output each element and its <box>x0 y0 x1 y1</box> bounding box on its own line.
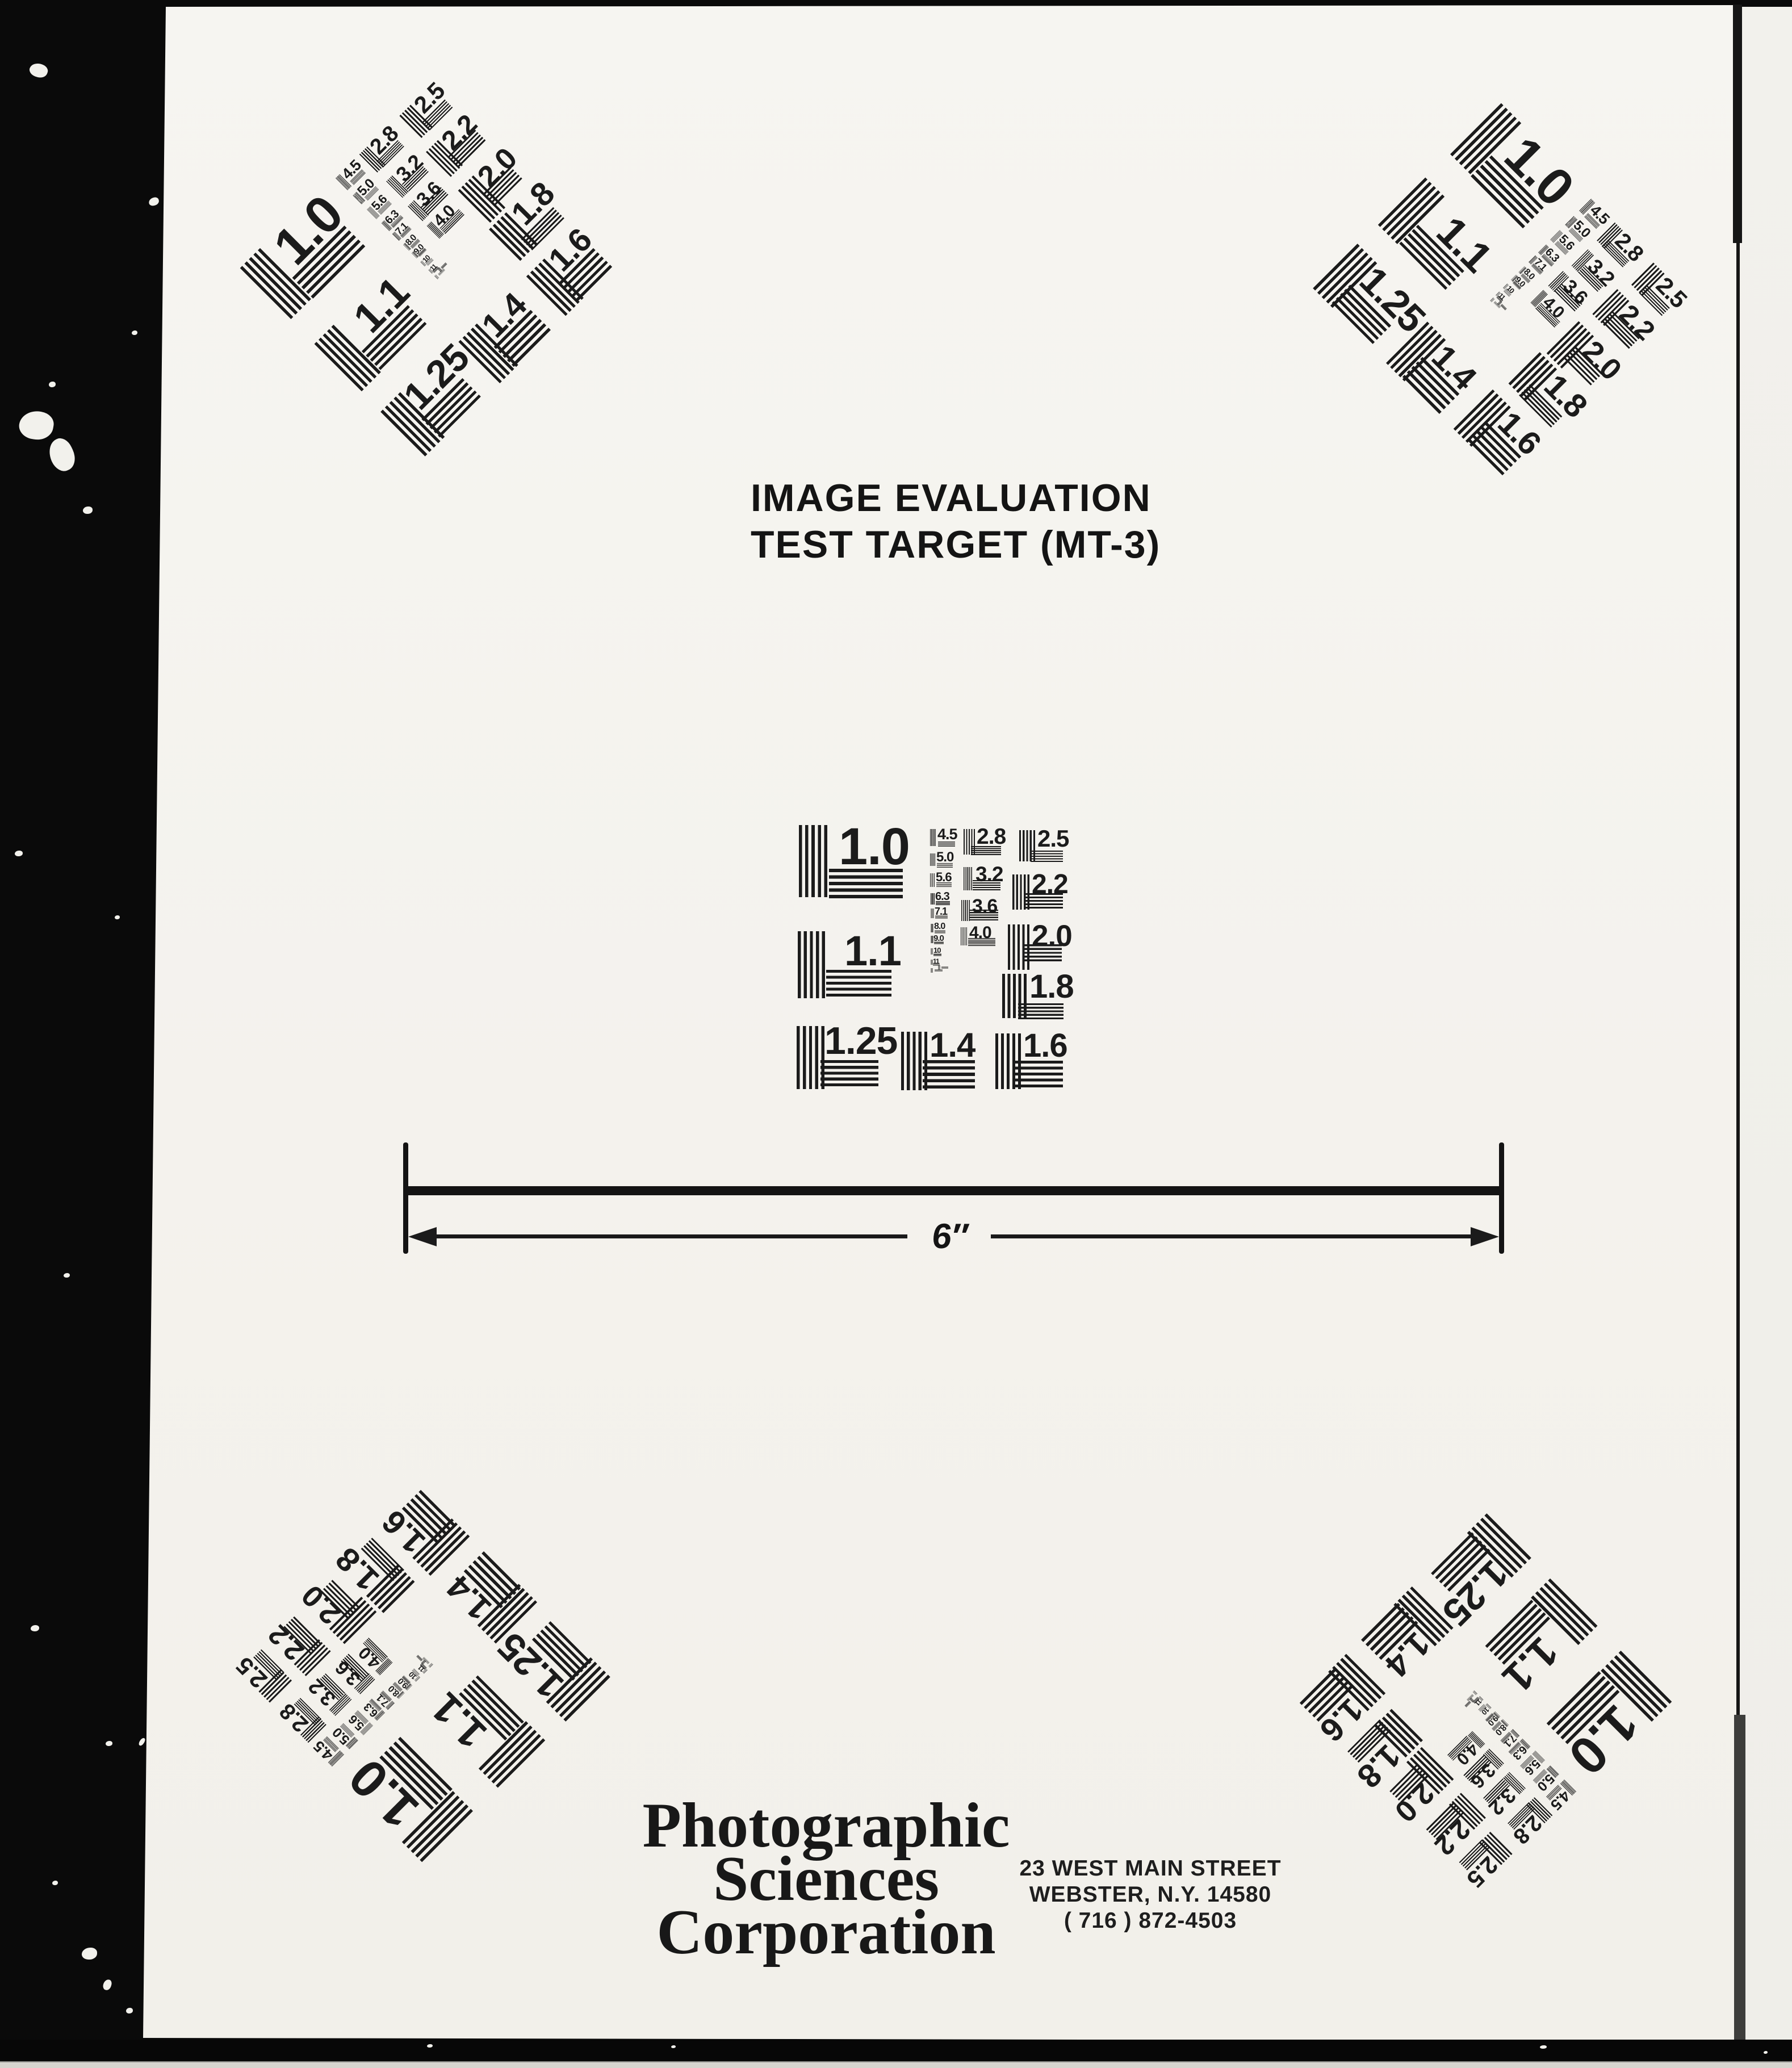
ratio-label-7.1: 7.1 <box>935 906 947 916</box>
ratio-label-2.0: 2.0 <box>1032 921 1072 951</box>
dust-speckle <box>17 408 56 442</box>
vbars-4.0 <box>961 927 967 945</box>
dimension-line-left-segment <box>434 1234 907 1238</box>
ratio-label-8.0: 8.0 <box>934 922 945 931</box>
vbars-7.1 <box>931 909 934 918</box>
dust-speckle <box>15 851 23 856</box>
dust-speckle <box>106 1741 112 1746</box>
ratio-label-1.25: 1.25 <box>824 1022 897 1060</box>
dust-speckle <box>102 1979 112 1991</box>
test-target-sheet: IMAGE EVALUATION TEST TARGET (MT-3) 6″ P… <box>0 0 1792 2067</box>
ratio-label-2.2: 2.2 <box>1032 871 1068 898</box>
hbars-micro <box>935 969 943 972</box>
dimension-line-right-segment <box>991 1234 1471 1238</box>
scale-thick-bar <box>405 1186 1502 1195</box>
dust-speckle <box>52 1881 58 1885</box>
title-block: IMAGE EVALUATION TEST TARGET (MT-3) <box>751 475 1161 568</box>
company-address: 23 WEST MAIN STREET WEBSTER, N.Y. 14580 … <box>1017 1856 1284 1934</box>
page-edge-line-bottom <box>1734 1715 1745 2041</box>
vbars-10 <box>931 948 933 955</box>
hbars-micro <box>941 966 948 969</box>
dust-speckle <box>49 382 56 387</box>
dust-speckle <box>427 2044 433 2048</box>
dust-speckle <box>31 1625 39 1631</box>
address-line: WEBSTER, N.Y. 14580 <box>1017 1882 1284 1908</box>
pattern-top-right: 1.01.11.251.41.61.82.02.22.52.83.23.64.0… <box>1307 99 1693 485</box>
ratio-label-1.0: 1.0 <box>839 820 910 873</box>
dust-speckle <box>115 915 120 919</box>
ratio-label-4.5: 4.5 <box>937 827 957 842</box>
dust-speckle <box>82 1948 97 1960</box>
ratio-label-3.6: 3.6 <box>972 897 997 916</box>
ratio-label-4.0: 4.0 <box>969 924 991 941</box>
pattern-top-left: 1.01.11.251.41.61.82.02.22.52.83.23.64.0… <box>236 77 622 463</box>
ratio-label-2.5: 2.5 <box>1037 827 1069 851</box>
scanner-bed-edge <box>0 2061 1792 2068</box>
ratio-label-11: 11 <box>933 958 939 965</box>
hbars-2.5 <box>1031 851 1063 862</box>
title-line-1: IMAGE EVALUATION <box>751 475 1161 521</box>
vbars-4.5 <box>930 829 936 846</box>
vbars-6.3 <box>931 893 935 905</box>
scale-right-tick <box>1499 1142 1504 1254</box>
hbars-1.4 <box>923 1060 975 1089</box>
pattern-bottom-right: 1.01.11.251.41.61.82.02.22.52.83.23.64.0… <box>1291 1508 1676 1893</box>
ratio-label-9.0: 9.0 <box>933 934 944 943</box>
ratio-label-3.2: 3.2 <box>975 864 1003 885</box>
ratio-label-10: 10 <box>933 947 940 954</box>
vbars-1.1 <box>798 931 825 998</box>
dust-speckle <box>132 330 137 335</box>
ink-fleck <box>0 0 6 6</box>
hbars-1.6 <box>1014 1061 1063 1087</box>
left-arrowhead-icon <box>408 1227 437 1246</box>
scanned-test-target-page: { "document": { "title_line1": "IMAGE EV… <box>0 0 1792 2067</box>
address-line: ( 716 ) 872-4503 <box>1017 1908 1284 1934</box>
title-line-2: TEST TARGET (MT-3) <box>751 521 1161 568</box>
ratio-label-2.8: 2.8 <box>977 826 1006 848</box>
ratio-label-1.1: 1.1 <box>844 930 901 972</box>
hbars-1.8 <box>1018 1003 1064 1019</box>
hbars-1.25 <box>820 1060 878 1086</box>
vbars-3.2 <box>964 867 972 890</box>
scale-length-label: 6″ <box>930 1216 971 1257</box>
dust-speckle <box>83 506 93 514</box>
vbars-micro <box>434 274 439 279</box>
vbars-1.0 <box>799 825 827 897</box>
ratio-label-1.6: 1.6 <box>1023 1029 1067 1062</box>
ratio-label-1.8: 1.8 <box>1029 970 1074 1003</box>
vbars-5.6 <box>930 873 935 887</box>
company-imprint: Photographic Sciences Corporation <box>571 1799 1082 1959</box>
scan-bottom-margin <box>0 2040 1792 2061</box>
dust-speckle <box>338 2029 342 2032</box>
dust-speckle <box>1540 2045 1547 2049</box>
dust-speckle <box>126 2008 133 2013</box>
page-edge-line-mid <box>1736 227 1740 1715</box>
pattern-center: 1.01.11.251.41.61.82.02.22.52.83.23.64.0… <box>795 823 1067 1096</box>
dust-speckle <box>28 61 49 79</box>
dust-speckle <box>64 1273 70 1278</box>
dust-speckle <box>148 196 160 207</box>
scale-left-tick <box>403 1142 408 1254</box>
ratio-label-1.4: 1.4 <box>930 1028 975 1062</box>
vbars-5.0 <box>930 853 935 866</box>
vbars-micro <box>1473 1690 1477 1695</box>
dust-speckle <box>44 435 80 475</box>
pattern-bottom-left: 1.01.11.251.41.61.82.02.22.52.83.23.64.0… <box>231 1481 617 1866</box>
adjacent-page-sliver <box>1740 7 1792 2040</box>
vbars-micro <box>428 1663 433 1668</box>
ratio-label-3.2: 3.2 <box>1584 256 1618 290</box>
vbars-micro <box>931 968 933 973</box>
dust-speckle <box>138 1737 146 1747</box>
ratio-label-6.3: 6.3 <box>935 891 949 902</box>
hbars-micro <box>441 262 447 269</box>
ratio-label-5.6: 5.6 <box>936 871 952 884</box>
dust-speckle <box>1764 2051 1768 2054</box>
address-line: 23 WEST MAIN STREET <box>1017 1856 1284 1882</box>
company-line: Corporation <box>571 1906 1082 1959</box>
hbars-micro <box>1500 304 1506 310</box>
dust-speckle <box>671 2045 676 2048</box>
vbars-3.6 <box>961 900 970 921</box>
vbars-8.0 <box>931 924 933 932</box>
ratio-label-5.0: 5.0 <box>936 851 953 864</box>
right-arrowhead-icon <box>1471 1227 1499 1246</box>
page-edge-line-top <box>1733 5 1742 243</box>
hbars-micro <box>1464 1701 1471 1707</box>
